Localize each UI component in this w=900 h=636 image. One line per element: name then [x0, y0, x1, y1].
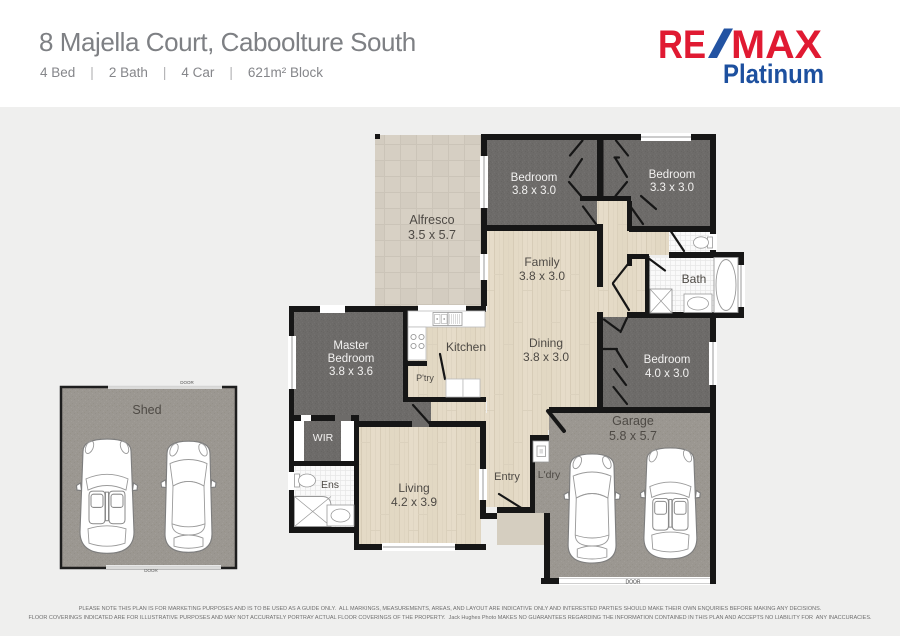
- svg-text:Bedroom: Bedroom: [328, 353, 375, 365]
- svg-text:L'dry: L'dry: [538, 469, 561, 481]
- svg-text:Bedroom: Bedroom: [649, 169, 696, 181]
- svg-text:Garage: Garage: [612, 414, 654, 428]
- svg-text:Living: Living: [398, 481, 429, 495]
- svg-text:Kitchen: Kitchen: [446, 340, 486, 354]
- svg-text:Ens: Ens: [321, 479, 339, 491]
- svg-text:Master: Master: [333, 340, 368, 352]
- svg-text:Entry: Entry: [494, 471, 520, 483]
- svg-text:Shed: Shed: [132, 403, 161, 417]
- svg-text:3.5 x 5.7: 3.5 x 5.7: [408, 228, 456, 242]
- svg-text:Family: Family: [524, 255, 559, 269]
- svg-text:4.2 x 3.9: 4.2 x 3.9: [391, 495, 437, 509]
- svg-text:3.8 x 3.6: 3.8 x 3.6: [329, 366, 373, 378]
- svg-text:DOOR: DOOR: [144, 568, 158, 573]
- svg-text:WIR: WIR: [313, 432, 334, 444]
- svg-text:5.8 x 5.7: 5.8 x 5.7: [609, 429, 657, 443]
- svg-text:Bedroom: Bedroom: [511, 172, 558, 184]
- svg-text:DOOR: DOOR: [626, 580, 641, 586]
- svg-text:Bedroom: Bedroom: [644, 354, 691, 366]
- svg-text:Bath: Bath: [682, 272, 707, 286]
- svg-text:3.8 x 3.0: 3.8 x 3.0: [512, 185, 556, 197]
- svg-text:3.8 x 3.0: 3.8 x 3.0: [519, 269, 565, 283]
- svg-text:DOOR: DOOR: [180, 380, 194, 385]
- svg-text:3.8 x 3.0: 3.8 x 3.0: [523, 350, 569, 364]
- svg-text:Alfresco: Alfresco: [409, 213, 454, 227]
- svg-text:4.0 x 3.0: 4.0 x 3.0: [645, 368, 689, 380]
- svg-text:3.3 x 3.0: 3.3 x 3.0: [650, 182, 694, 194]
- svg-text:P'try: P'try: [416, 373, 434, 383]
- svg-text:Dining: Dining: [529, 336, 563, 350]
